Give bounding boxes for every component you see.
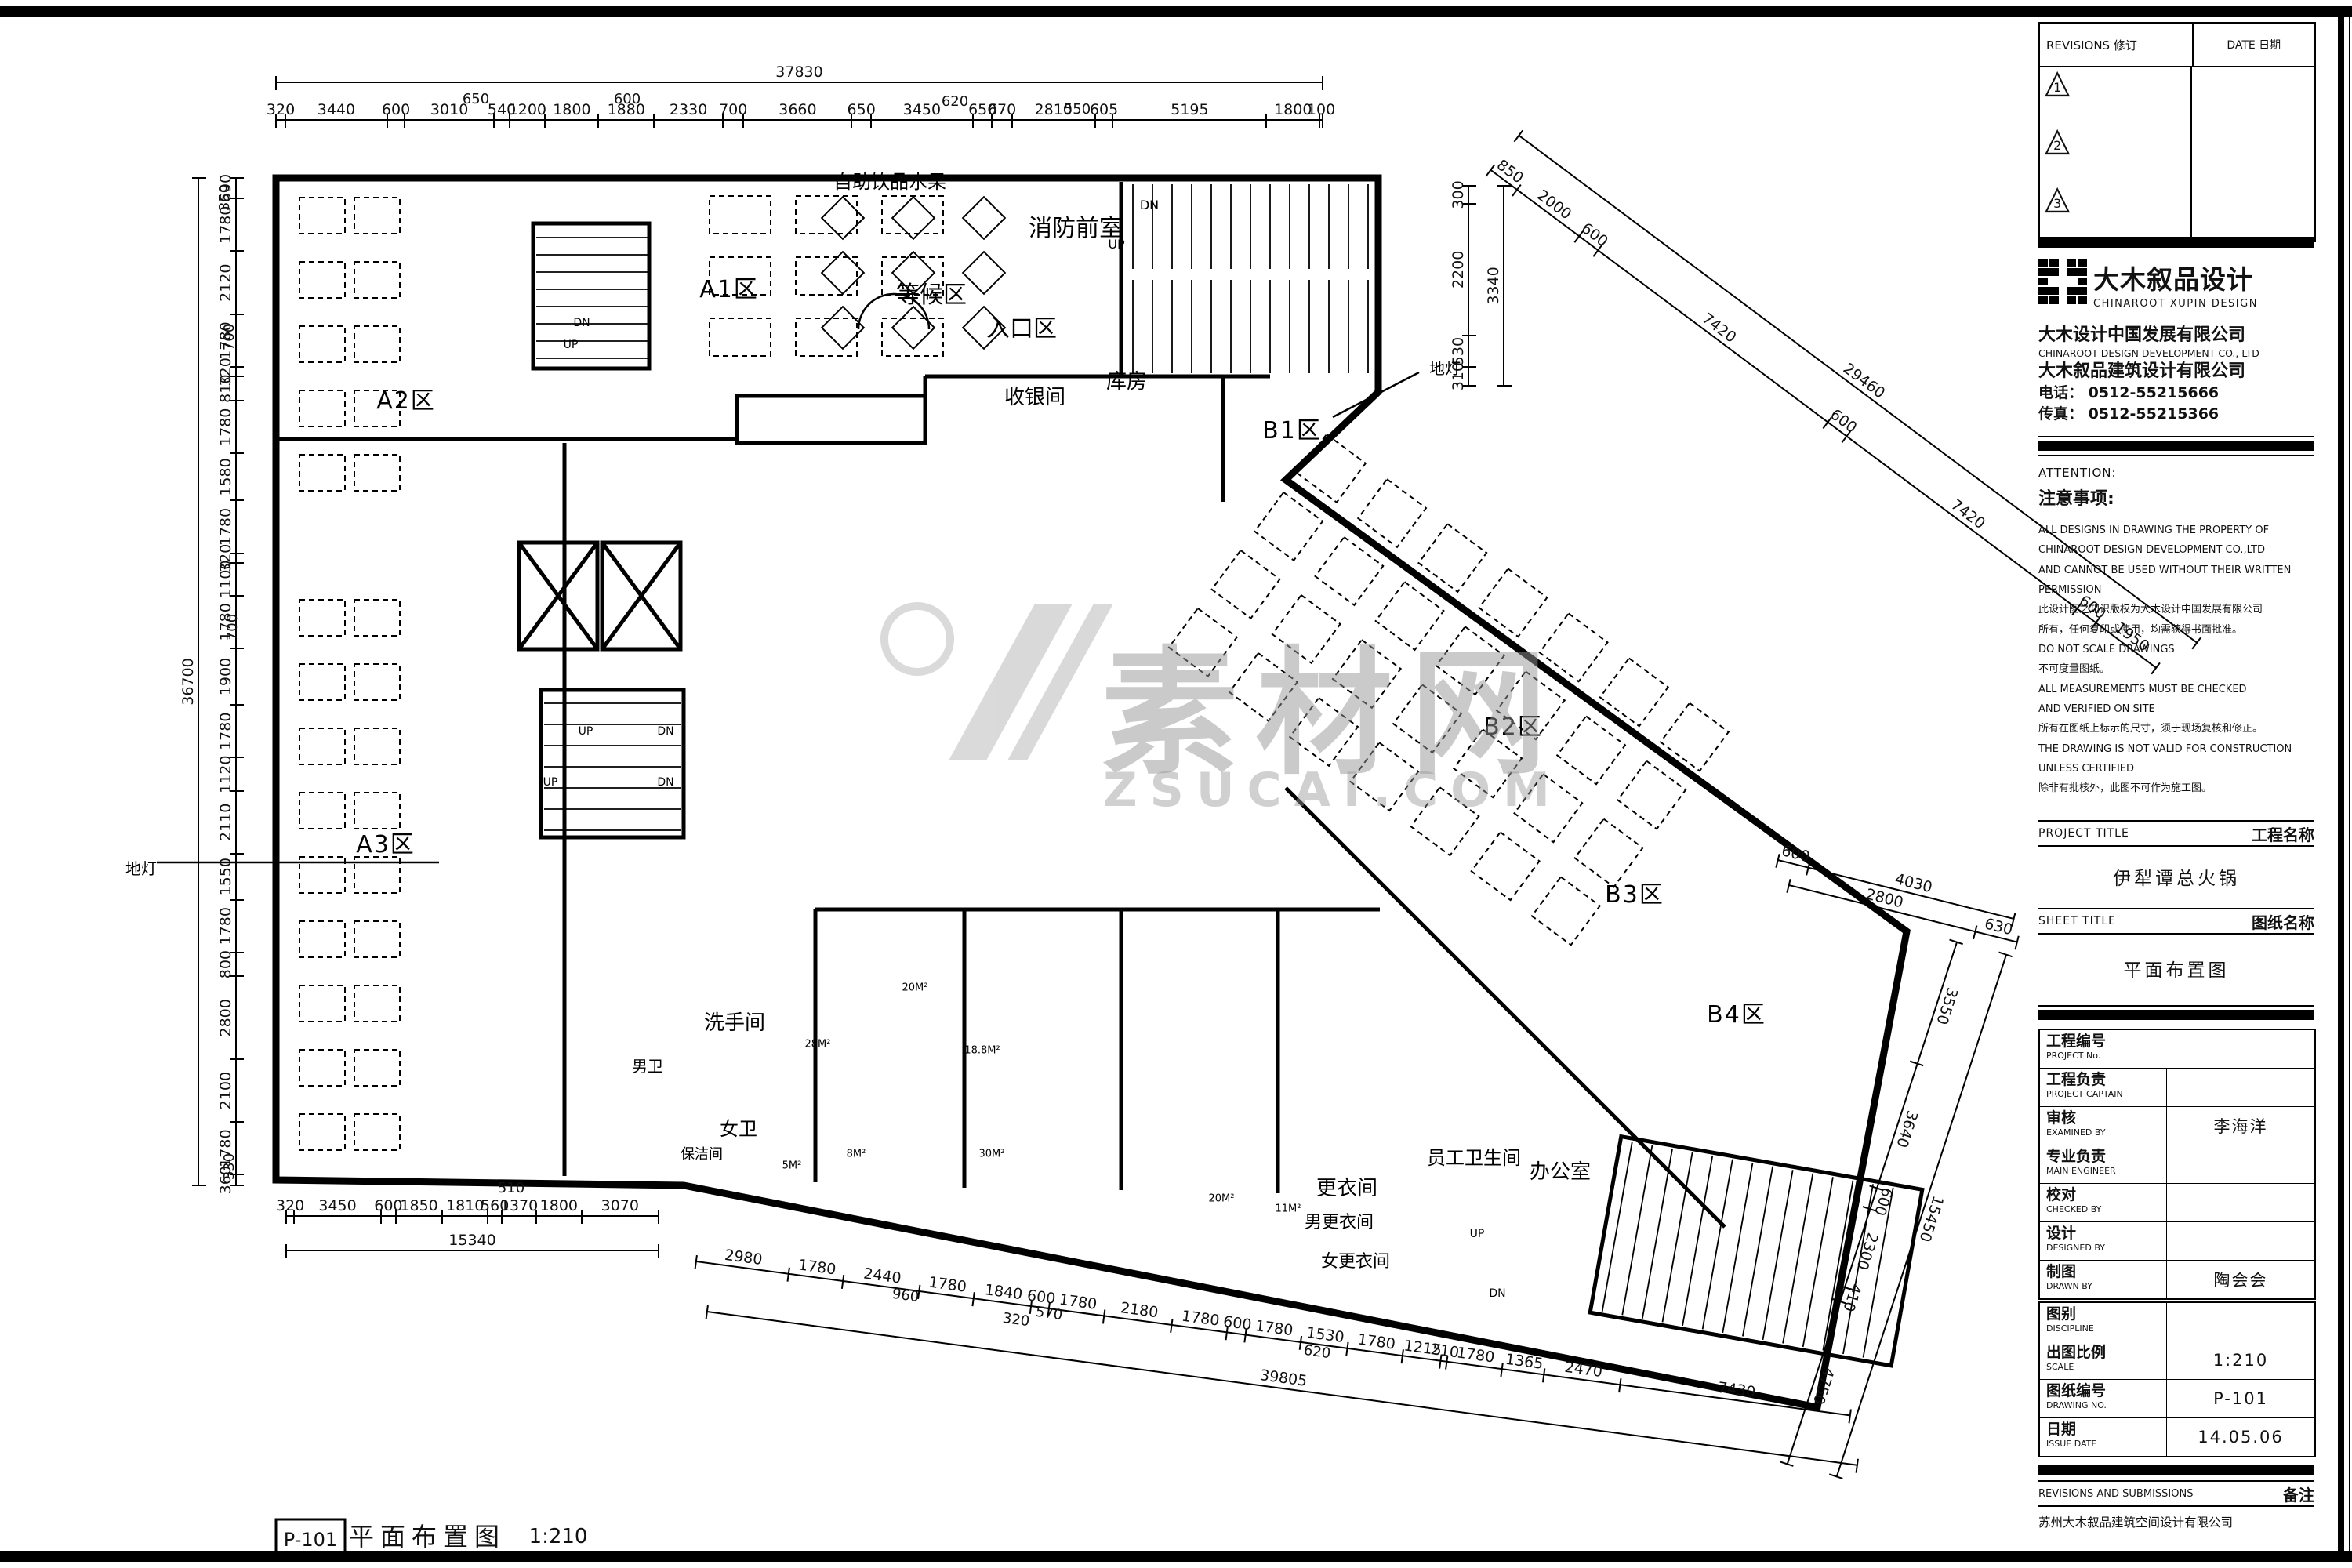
project-title-label-en: PROJECT TITLE	[2038, 827, 2129, 840]
sheet-right-border	[2338, 6, 2344, 1562]
text-line: ALL MEASUREMENTS MUST BE CHECKED	[2038, 680, 2314, 699]
plan-label: 650	[463, 93, 489, 107]
text-line: AND VERIFIED ON SITE	[2038, 699, 2314, 719]
project-title-value: 伊犁谭总火锅	[2038, 847, 2314, 906]
plan-label: 20M²	[1209, 1194, 1235, 1204]
text-line: 除非有批核外，此图不可作为施工图。	[2038, 779, 2314, 798]
text-line: THE DRAWING IS NOT VALID FOR CONSTRUCTIO…	[2038, 739, 2314, 759]
drawing-sheet: { "sheet": { "footer": { "sheet_no": "P-…	[0, 0, 2352, 1568]
plan-label: 330	[223, 1153, 237, 1180]
field-row: 制图DRAWN BY陶会会	[2040, 1261, 2314, 1298]
plan-label: 570	[1035, 1305, 1063, 1323]
logo-name-cn: 大木叙品设计	[2093, 259, 2258, 296]
divider-bar	[2038, 1465, 2314, 1475]
plan-label: A1区	[699, 278, 759, 302]
footer-scale: 1:210	[529, 1525, 588, 1548]
plan-label: 30M²	[979, 1149, 1005, 1160]
divider-bar	[2038, 1010, 2314, 1020]
sheet-title-header: SHEET TITLE 图纸名称	[2038, 908, 2314, 935]
field-row: 工程负责PROJECT CAPTAIN	[2040, 1069, 2314, 1107]
field-row: 图纸编号DRAWING NO.P-101	[2040, 1380, 2314, 1418]
plan-label: DN	[1489, 1288, 1505, 1299]
plan-label: 等候区	[896, 284, 967, 307]
divider-line	[2038, 436, 2314, 437]
plan-label: 18.8M²	[964, 1046, 1000, 1056]
plan-label: 办公室	[1530, 1162, 1591, 1182]
text-line: 所有，任何复印或使用，均需获得书面批准。	[2038, 620, 2314, 640]
plan-label: 550	[1064, 103, 1091, 117]
sheet-right-border-outer	[2349, 6, 2350, 1562]
plan-label: 600	[614, 93, 641, 107]
field-row: 设计DESIGNED BY	[2040, 1222, 2314, 1261]
plan-label: 员工卫生间	[1427, 1149, 1521, 1167]
plan-label: A3区	[356, 833, 416, 857]
revision-triangle-icon: △3	[2045, 183, 2070, 212]
plan-label: DN	[657, 777, 673, 788]
text-line: UNLESS CERTIFIED	[2038, 759, 2314, 779]
text-line: AND CANNOT BE USED WITHOUT THEIR WRITTEN	[2038, 561, 2314, 580]
plan-label: B1区	[1262, 419, 1322, 443]
plan-label: 620	[942, 95, 968, 109]
plan-label: 620	[1303, 1344, 1331, 1361]
text-line: CHINAROOT DESIGN DEVELOPMENT CO.,LTD	[2038, 540, 2314, 560]
attention-title-cn: 注意事项:	[2038, 485, 2314, 510]
plan-label: B3区	[1605, 884, 1664, 907]
text-line: 所有在图纸上标示的尺寸，须于现场复核和修正。	[2038, 719, 2314, 739]
sheet-title-label-en: SHEET TITLE	[2038, 915, 2116, 927]
plan-label: 8M²	[847, 1149, 866, 1160]
company-en-1: CHINAROOT DESIGN DEVELOPMENT CO., LTD	[2038, 347, 2314, 361]
text-line: 此设计图之知识版权为大木设计中国发展有限公司	[2038, 600, 2314, 619]
plan-label: DN	[573, 318, 590, 328]
plan-label: A2区	[376, 390, 436, 413]
plan-label: 地灯	[1429, 361, 1461, 376]
plan-label: 洗手间	[704, 1013, 765, 1033]
plan-label: DN	[1140, 199, 1159, 212]
remarks-label-en: REVISIONS AND SUBMISSIONS	[2038, 1488, 2193, 1500]
plan-label: 女卫	[720, 1120, 757, 1138]
title-block: REVISIONS 修订 DATE 日期 △1 △2 △3 大木叙品设计 CHI…	[2038, 0, 2314, 1568]
revisions-header: REVISIONS 修订	[2040, 37, 2192, 53]
plan-label: 收银间	[1004, 387, 1065, 408]
field-row: 审核EXAMINED BY李海洋	[2040, 1107, 2314, 1145]
remarks-value: 苏州大木叙品建筑空间设计有限公司	[2038, 1513, 2314, 1530]
watermark-url: ZSUCAI.COM	[1103, 763, 1563, 818]
plan-label: 510	[498, 1181, 524, 1196]
divider-bar	[2038, 441, 2314, 451]
plan-labels: A1区A2区A3区B1区B2区B3区B4区自助饮品水果消防前室等候区入口区收银间…	[0, 0, 2038, 1568]
attention-note: ATTENTION: 注意事项: ALL DESIGNS IN DRAWING …	[2038, 466, 2314, 799]
plan-label: 保洁间	[681, 1148, 723, 1162]
plan-label: DN	[657, 726, 673, 737]
plan-label: 地灯	[125, 861, 157, 877]
divider-line	[2038, 455, 2314, 456]
plan-label: UP	[1108, 238, 1124, 251]
plan-label: 320	[1002, 1312, 1030, 1329]
plan-label: UP	[579, 726, 593, 737]
sheet-title-value: 平面布置图	[2038, 935, 2314, 1002]
company-fax: 传真： 0512-55215366	[2038, 404, 2314, 426]
company-cn-1: 大木设计中国发展有限公司	[2038, 325, 2314, 347]
footer-drawing-title: 平面布置图	[349, 1517, 506, 1553]
plan-label: 男卫	[632, 1058, 663, 1074]
plan-label: 男更衣间	[1305, 1214, 1374, 1232]
plan-label: 700	[223, 324, 237, 350]
company-tel: 电话： 0512-55215666	[2038, 383, 2314, 405]
attention-title-en: ATTENTION:	[2038, 466, 2314, 480]
field-row: 专业负责MAIN ENGINEER	[2040, 1145, 2314, 1184]
project-title-header: PROJECT TITLE 工程名称	[2038, 820, 2314, 847]
plan-label: UP	[564, 339, 579, 350]
revisions-table: REVISIONS 修订 DATE 日期 △1 △2 △3	[2038, 22, 2316, 242]
plan-label: 350	[218, 184, 232, 211]
plan-label: 5M²	[782, 1161, 802, 1171]
plan-label: UP	[543, 777, 558, 788]
revision-triangle-icon: △2	[2045, 125, 2070, 154]
plan-label: 28M²	[805, 1040, 831, 1050]
remarks-label-cn: 备注	[2283, 1483, 2314, 1505]
plan-label: 自助饮品水果	[833, 172, 946, 191]
plan-label: 库房	[1106, 372, 1147, 392]
text-line: ALL DESIGNS IN DRAWING THE PROPERTY OF	[2038, 521, 2314, 540]
footer-sheet-number: P-101	[284, 1529, 337, 1551]
plan-label: 20M²	[902, 983, 928, 993]
field-row: 出图比例SCALE1:210	[2040, 1341, 2314, 1380]
divider-bar	[2038, 237, 2314, 248]
logo-mark-icon	[2038, 259, 2087, 304]
text-line: 不可度量图纸。	[2038, 659, 2314, 679]
plan-label: 700	[226, 614, 240, 641]
sheet-title-label-cn: 图纸名称	[2252, 910, 2314, 933]
revision-triangle-icon: △1	[2045, 67, 2070, 96]
plan-label: 960	[891, 1287, 920, 1305]
plan-label: 更衣间	[1316, 1178, 1377, 1199]
plan-label: 女更衣间	[1321, 1254, 1390, 1271]
plan-label: 11M²	[1276, 1204, 1301, 1214]
plan-label: UP	[1470, 1229, 1485, 1240]
text-line: PERMISSION	[2038, 580, 2314, 600]
company-info: 大木设计中国发展有限公司 CHINAROOT DESIGN DEVELOPMEN…	[2038, 325, 2314, 426]
plan-label: B4区	[1707, 1004, 1766, 1027]
attention-lines: ALL DESIGNS IN DRAWING THE PROPERTY OFCH…	[2038, 521, 2314, 799]
field-row: 校对CHECKED BY	[2040, 1184, 2314, 1222]
remarks-section: REVISIONS AND SUBMISSIONS 备注 苏州大木叙品建筑空间设…	[2038, 1480, 2314, 1530]
project-title-label-cn: 工程名称	[2252, 822, 2314, 845]
logo-name-en: CHINAROOT XUPIN DESIGN	[2093, 298, 2258, 310]
company-cn-2: 大木叙品建筑设计有限公司	[2038, 361, 2314, 383]
personnel-table: 工程编号PROJECT No.工程负责PROJECT CAPTAIN审核EXAM…	[2038, 1029, 2316, 1300]
field-row: 图别DISCIPLINE	[2040, 1303, 2314, 1341]
field-row: 工程编号PROJECT No.	[2040, 1030, 2314, 1069]
text-line: DO NOT SCALE DRAWINGS	[2038, 640, 2314, 659]
divider-line	[2038, 1005, 2314, 1007]
field-row: 日期ISSUE DATE14.05.06	[2040, 1418, 2314, 1456]
plan-label: 入口区	[986, 318, 1057, 341]
sheet-info-table: 图别DISCIPLINE出图比例SCALE1:210图纸编号DRAWING NO…	[2038, 1301, 2316, 1457]
company-logo: 大木叙品设计 CHINAROOT XUPIN DESIGN	[2038, 259, 2314, 310]
date-header: DATE 日期	[2192, 24, 2315, 66]
